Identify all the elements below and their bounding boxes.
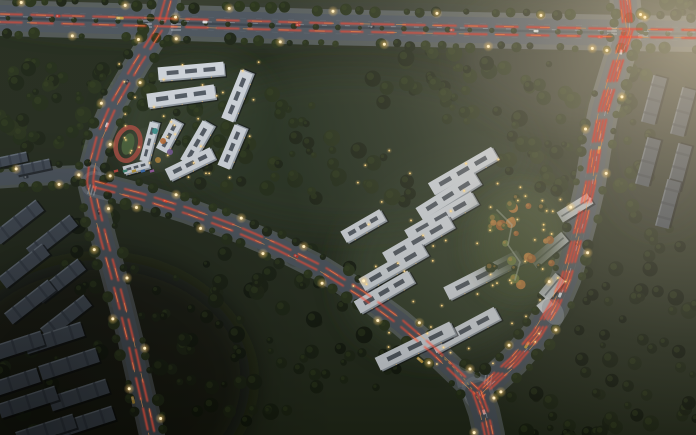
render-canvas	[0, 0, 696, 435]
aerial-masterplan-render	[0, 0, 696, 435]
sunset-haze-overlay	[0, 0, 696, 435]
